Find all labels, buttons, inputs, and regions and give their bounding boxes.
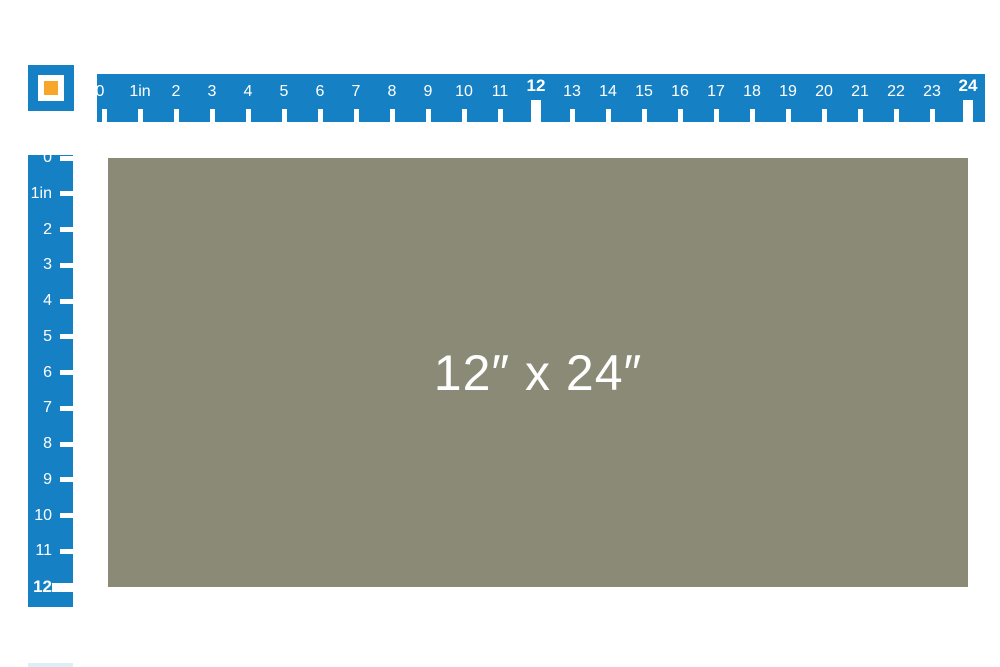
h-ruler-tick-2 — [174, 109, 179, 122]
swatch-corner-icon-center — [44, 81, 58, 95]
h-ruler-tick-13 — [570, 109, 575, 122]
h-ruler-tick-19 — [786, 109, 791, 122]
h-ruler-label-4: 4 — [244, 83, 253, 101]
h-ruler-tick-8 — [390, 109, 395, 122]
h-ruler-label-23: 23 — [923, 83, 941, 101]
h-ruler-tick-4 — [246, 109, 251, 122]
v-ruler-tick-11 — [60, 549, 73, 554]
v-ruler-label-2: 2 — [43, 221, 52, 239]
size-swatch-rectangle: 12″ x 24″ — [108, 158, 968, 587]
v-ruler-label-9: 9 — [43, 471, 52, 489]
h-ruler-tick-15 — [642, 109, 647, 122]
h-ruler-tick-14 — [606, 109, 611, 122]
h-ruler-label-21: 21 — [851, 83, 869, 101]
h-ruler-tick-23 — [930, 109, 935, 122]
v-ruler-tick-7 — [60, 406, 73, 411]
h-ruler-tick-20 — [822, 109, 827, 122]
h-ruler-tick-6 — [318, 109, 323, 122]
v-ruler-label-0: 0 — [43, 155, 52, 167]
h-ruler-label-11: 11 — [492, 83, 509, 101]
h-ruler-tick-22 — [894, 109, 899, 122]
h-ruler-label-5: 5 — [280, 83, 289, 101]
h-ruler-tick-5 — [282, 109, 287, 122]
h-ruler-tick-0 — [102, 109, 107, 122]
h-ruler-tick-7 — [354, 109, 359, 122]
v-ruler-label-5: 5 — [43, 328, 52, 346]
h-ruler-tick-17 — [714, 109, 719, 122]
v-ruler-label-8: 8 — [43, 435, 52, 453]
v-ruler-tick-0 — [60, 156, 73, 161]
h-ruler-tick-3 — [210, 109, 215, 122]
v-ruler-tick-8 — [60, 442, 73, 447]
v-ruler-tick-10 — [60, 513, 73, 518]
v-ruler-tick-1in — [60, 191, 73, 196]
h-ruler-tick-11 — [498, 109, 503, 122]
h-ruler-tick-21 — [858, 109, 863, 122]
h-ruler-label-15: 15 — [635, 83, 653, 101]
h-ruler-tick-16 — [678, 109, 683, 122]
h-ruler-tick-9 — [426, 109, 431, 122]
v-ruler-label-3: 3 — [43, 256, 52, 274]
h-ruler-tick-12 — [531, 100, 541, 122]
size-label: 12″ x 24″ — [434, 344, 642, 402]
v-ruler-label-10: 10 — [34, 507, 52, 525]
v-ruler-label-7: 7 — [43, 399, 52, 417]
swatch-corner-icon — [28, 65, 74, 111]
h-ruler-tick-24 — [963, 100, 973, 122]
h-ruler-label-6: 6 — [316, 83, 325, 101]
h-ruler-label-12: 12 — [527, 76, 546, 96]
h-ruler-label-14: 14 — [599, 83, 617, 101]
v-ruler-tick-2 — [60, 227, 73, 232]
h-ruler-label-20: 20 — [815, 83, 833, 101]
v-ruler-tick-6 — [60, 370, 73, 375]
v-ruler-tick-9 — [60, 477, 73, 482]
h-ruler-label-2: 2 — [172, 83, 181, 101]
horizontal-ruler-inches: 01in234567891011121314151617181920212223… — [97, 74, 985, 122]
h-ruler-label-16: 16 — [671, 83, 689, 101]
vertical-ruler-inches: 01in23456789101112 — [28, 155, 73, 607]
v-ruler-label-12: 12 — [33, 577, 52, 597]
h-ruler-label-9: 9 — [424, 83, 433, 101]
h-ruler-label-10: 10 — [455, 83, 473, 101]
v-ruler-label-4: 4 — [43, 292, 52, 310]
h-ruler-tick-10 — [462, 109, 467, 122]
h-ruler-label-24: 24 — [959, 76, 978, 96]
v-ruler-tick-4 — [60, 299, 73, 304]
h-ruler-label-13: 13 — [563, 83, 581, 101]
h-ruler-label-22: 22 — [887, 83, 905, 101]
v-ruler-tick-3 — [60, 263, 73, 268]
v-ruler-tick-12 — [52, 583, 73, 592]
h-ruler-label-19: 19 — [779, 83, 797, 101]
h-ruler-tick-1in — [138, 109, 143, 122]
h-ruler-label-3: 3 — [208, 83, 217, 101]
v-ruler-tick-5 — [60, 334, 73, 339]
v-ruler-label-11: 11 — [35, 542, 52, 560]
swatch-corner-icon-ring — [38, 75, 64, 101]
partial-element-bottom-edge — [28, 663, 73, 667]
size-diagram-canvas: 01in234567891011121314151617181920212223… — [0, 0, 1000, 667]
h-ruler-label-17: 17 — [707, 83, 725, 101]
h-ruler-label-0: 0 — [97, 83, 104, 101]
h-ruler-label-1in: 1in — [129, 83, 150, 101]
h-ruler-tick-18 — [750, 109, 755, 122]
v-ruler-label-6: 6 — [43, 364, 52, 382]
h-ruler-label-7: 7 — [352, 83, 361, 101]
h-ruler-label-8: 8 — [388, 83, 397, 101]
v-ruler-label-1in: 1in — [31, 185, 52, 203]
h-ruler-label-18: 18 — [743, 83, 761, 101]
